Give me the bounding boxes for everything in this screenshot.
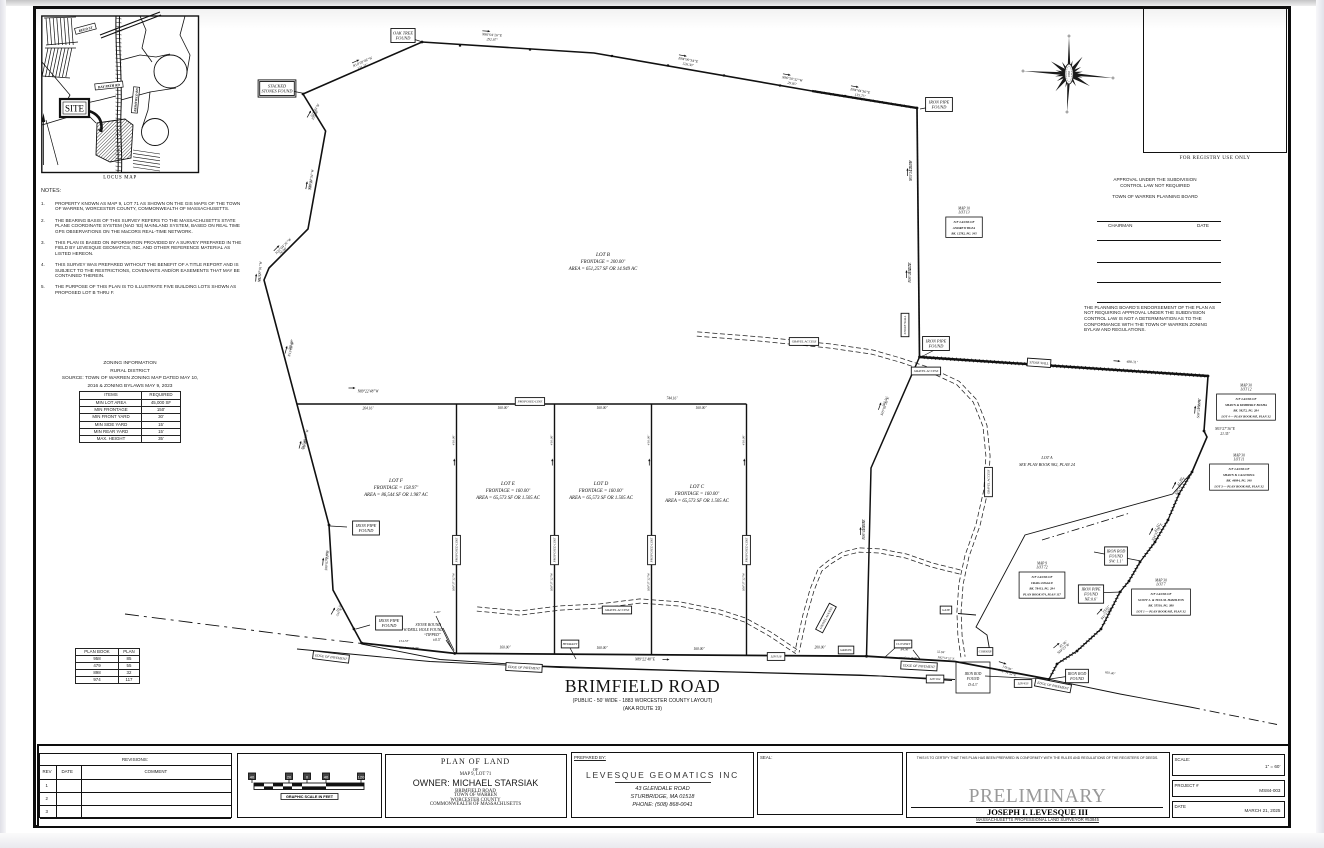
svg-text:FOUND: FOUND [928, 344, 945, 349]
svg-text:264.16’: 264.16’ [362, 407, 374, 411]
svg-text:GRAVEL: GRAVEL [840, 648, 852, 652]
svg-text:120: 120 [357, 774, 364, 779]
svg-text:FOUND: FOUND [381, 623, 398, 628]
svg-text:N89°28’23”W: N89°28’23”W [398, 646, 420, 650]
svg-text:160.00’: 160.00’ [497, 406, 509, 410]
svg-text:AREA = 651,257 SF OR 14.949 AC: AREA = 651,257 SF OR 14.949 AC [568, 267, 638, 272]
svg-text:LOT 11: LOT 11 [1233, 458, 1245, 462]
svg-text:GRAVEL ACCESS: GRAVEL ACCESS [987, 469, 991, 494]
svg-text:FRONTAGE = 158.97’: FRONTAGE = 158.97’ [373, 486, 419, 491]
svg-text:±0.5’: ±0.5’ [433, 638, 442, 642]
svg-text:D:4.3’: D:4.3’ [967, 683, 978, 687]
svg-text:20: 20 [286, 774, 291, 779]
svg-text:41.17’: 41.17’ [258, 271, 263, 281]
svg-text:GRAVEL ACCESS: GRAVEL ACCESS [792, 340, 817, 344]
svg-text:55.94’: 55.94’ [937, 650, 946, 655]
svg-text:410.00’: 410.00’ [741, 434, 745, 445]
svg-text:N/F LANDS OF: N/F LANDS OF [1234, 397, 1257, 401]
svg-text:N89°21’43”E: N89°21’43”E [898, 656, 917, 660]
svg-text:N/F LANDS OF: N/F LANDS OF [952, 220, 975, 224]
svg-text:FOUND: FOUND [966, 677, 980, 681]
svg-text:S08°22’19”E: S08°22’19”E [1196, 398, 1202, 418]
svg-text:160.00’: 160.00’ [693, 647, 705, 651]
svg-text:FRONTAGE = 200.00’: FRONTAGE = 200.00’ [580, 260, 626, 265]
svg-text:BK. 12782, PG. 345: BK. 12782, PG. 345 [950, 232, 977, 236]
svg-text:1983: 1983 [1067, 71, 1071, 78]
svg-text:526.30’: 526.30’ [682, 62, 694, 68]
svg-text:AREA = 65,573 SF OR 1.505 AC: AREA = 65,573 SF OR 1.505 AC [475, 496, 541, 501]
svg-text:BK. 58272, PG. 284: BK. 58272, PG. 284 [1232, 409, 1259, 413]
svg-text:N03°27’36”E: N03°27’36”E [1214, 427, 1236, 431]
svg-text:IRON ROD: IRON ROD [964, 672, 982, 676]
svg-text:PROPOSED LINE: PROPOSED LINE [455, 538, 459, 564]
svg-text:410.00’: 410.00’ [451, 434, 455, 445]
svg-text:N/F LANDS OF: N/F LANDS OF [1030, 575, 1053, 579]
svg-text:160.00’: 160.00’ [596, 646, 608, 650]
svg-text:PROPOSED LINE: PROPOSED LINE [553, 538, 557, 564]
svg-text:LIP/164: LIP/164 [929, 677, 941, 681]
svg-text:SW: 1.1’: SW: 1.1’ [1109, 558, 1123, 563]
svg-text:CRAIG DIGGLE: CRAIG DIGGLE [1031, 581, 1053, 585]
svg-text:PROPOSED LINE: PROPOSED LINE [517, 400, 543, 404]
svg-text:160.00’: 160.00’ [499, 646, 511, 650]
svg-text:N06°26’42”E: N06°26’42”E [908, 262, 912, 284]
svg-text:4.40’: 4.40’ [433, 610, 441, 614]
svg-text:100.50’: 100.50’ [308, 178, 314, 190]
svg-text:FRONTAGE = 160.00’: FRONTAGE = 160.00’ [485, 489, 531, 494]
svg-text:LOT 7: LOT 7 [1155, 583, 1165, 587]
svg-text:S06°37’12”W: S06°37’12”W [549, 573, 553, 591]
svg-text:410.00’: 410.00’ [549, 434, 553, 445]
svg-text:W/DRILL HOLE FOUND: W/DRILL HOLE FOUND [403, 628, 443, 632]
svg-text:N/F LANDS OF: N/F LANDS OF [1227, 467, 1250, 471]
svg-text:LOCUS MAP: LOCUS MAP [103, 176, 137, 181]
svg-text:40: 40 [323, 774, 328, 779]
svg-text:BK. 78413, PG. 294: BK. 78413, PG. 294 [1028, 587, 1055, 591]
svg-text:LOT E: LOT E [500, 481, 516, 487]
svg-text:410.00’: 410.00’ [646, 434, 650, 445]
svg-text:LOT 72: LOT 72 [1035, 566, 1047, 570]
svg-text:FRONTAGE = 160.00’: FRONTAGE = 160.00’ [578, 489, 624, 494]
svg-text:FOUND: FOUND [1069, 676, 1084, 681]
svg-text:691.40’: 691.40’ [1105, 670, 1117, 676]
svg-text:CULVERT: CULVERT [896, 642, 911, 646]
svg-text:STONES FOUND: STONES FOUND [261, 89, 293, 94]
svg-text:N05°24’25”W: N05°24’25”W [909, 159, 913, 182]
svg-text:FOUND: FOUND [931, 105, 948, 110]
svg-text:SHAWN & KIMBERLY BUSHA: SHAWN & KIMBERLY BUSHA [1225, 403, 1267, 407]
svg-text:HYDRANT: HYDRANT [562, 642, 579, 646]
svg-text:AREA = 65,573 SF OR 1.505 AC: AREA = 65,573 SF OR 1.505 AC [568, 496, 634, 501]
svg-text:488.31’: 488.31’ [1126, 360, 1138, 365]
svg-text:BK. 46994, PG. 340: BK. 46994, PG. 340 [1225, 479, 1252, 483]
svg-text:PROPOSED LINE: PROPOSED LINE [745, 538, 749, 564]
svg-text:84.36’: 84.36’ [901, 648, 911, 652]
svg-text:AREA = 65,573 SF OR 1.505 AC: AREA = 65,573 SF OR 1.505 AC [664, 499, 730, 504]
svg-text:STONE WALL: STONE WALL [903, 315, 907, 334]
svg-text:GRAVEL ACCESS: GRAVEL ACCESS [914, 369, 939, 373]
svg-text:40: 40 [249, 774, 254, 779]
svg-text:FOUND: FOUND [358, 528, 375, 533]
svg-text:N/F LANDS OF: N/F LANDS OF [1149, 592, 1172, 596]
svg-text:LOT B: LOT B [595, 252, 611, 258]
svg-text:160.00’: 160.00’ [695, 406, 707, 410]
svg-text:200.00’: 200.00’ [814, 646, 826, 650]
svg-text:LOT 3 — PLAN BOOK 985, PLAN 32: LOT 3 — PLAN BOOK 985, PLAN 32 [1213, 484, 1264, 488]
svg-text:744.16’: 744.16’ [666, 397, 678, 401]
svg-text:GATE: GATE [942, 608, 950, 612]
svg-text:SHAWN B. CALDWELL: SHAWN B. CALDWELL [1223, 473, 1255, 477]
svg-text:LOT 13: LOT 13 [957, 211, 969, 215]
svg-text:N89°22’48”W: N89°22’48”W [357, 390, 380, 394]
svg-text:LOT A: LOT A [1040, 455, 1053, 460]
svg-text:160.00’: 160.00’ [596, 406, 608, 410]
svg-text:N89°22’48”E: N89°22’48”E [634, 658, 656, 662]
svg-text:SCOTT L. & TINA M. HAMILTON: SCOTT L. & TINA M. HAMILTON [1138, 598, 1185, 602]
svg-text:GRAPHIC SCALE IN FEET: GRAPHIC SCALE IN FEET [285, 795, 333, 799]
svg-text:BK. 55519, PG. 380: BK. 55519, PG. 380 [1147, 604, 1174, 608]
svg-text:21.35’: 21.35’ [1220, 432, 1230, 436]
svg-text:NE:0.6’: NE:0.6’ [1084, 596, 1098, 601]
svg-text:ANDREW BUZA: ANDREW BUZA [952, 226, 975, 230]
svg-text:STONE BOUND: STONE BOUND [415, 623, 441, 627]
svg-text:AREA = 86,544 SF OR 1.987 AC: AREA = 86,544 SF OR 1.987 AC [363, 493, 429, 498]
svg-text:S06°37’12”W: S06°37’12”W [646, 573, 650, 591]
svg-text:“TIPPED”: “TIPPED” [424, 632, 441, 637]
svg-text:CORNER: CORNER [979, 650, 992, 654]
svg-text:LOT F: LOT F [388, 478, 404, 484]
svg-text:PROPOSED LINE: PROPOSED LINE [650, 538, 654, 564]
svg-text:LIP/453: LIP/453 [1017, 682, 1029, 686]
svg-text:N15°08’W: N15°08’W [287, 341, 295, 359]
svg-text:29.85’: 29.85’ [787, 81, 798, 87]
svg-text:LOT 1 — PLAN BOOK 985, PLAN 32: LOT 1 — PLAN BOOK 985, PLAN 32 [1135, 609, 1186, 613]
svg-text:S06°37’12”W: S06°37’12”W [741, 573, 745, 591]
svg-text:LOT 4 — PLAN BOOK 985, PLAN 32: LOT 4 — PLAN BOOK 985, PLAN 32 [1220, 414, 1271, 418]
svg-text:SEE PLAN BOOK 982, PLAN 24: SEE PLAN BOOK 982, PLAN 24 [1019, 462, 1075, 468]
svg-text:GRAVEL ACCESS: GRAVEL ACCESS [605, 608, 630, 612]
svg-text:PLAN BOOK 974, PLAN 117: PLAN BOOK 974, PLAN 117 [1023, 592, 1061, 596]
svg-text:292.87’: 292.87’ [486, 37, 498, 42]
svg-text:LOT 12: LOT 12 [1239, 388, 1251, 392]
svg-text:S08°07’12”W: S08°07’12”W [324, 549, 330, 570]
svg-text:LOT C: LOT C [689, 484, 705, 490]
svg-text:N06°41’21”E: N06°41’21”E [862, 519, 866, 541]
svg-text:154.53’: 154.53’ [399, 639, 410, 643]
svg-text:FOUND: FOUND [395, 36, 412, 41]
svg-text:S06°37’12”W: S06°37’12”W [451, 573, 455, 591]
svg-text:FRONTAGE = 160.00’: FRONTAGE = 160.00’ [674, 492, 720, 497]
svg-text:SITE: SITE [65, 104, 85, 114]
svg-text:LIP/518: LIP/518 [770, 655, 782, 659]
svg-text:LOT D: LOT D [593, 481, 609, 487]
